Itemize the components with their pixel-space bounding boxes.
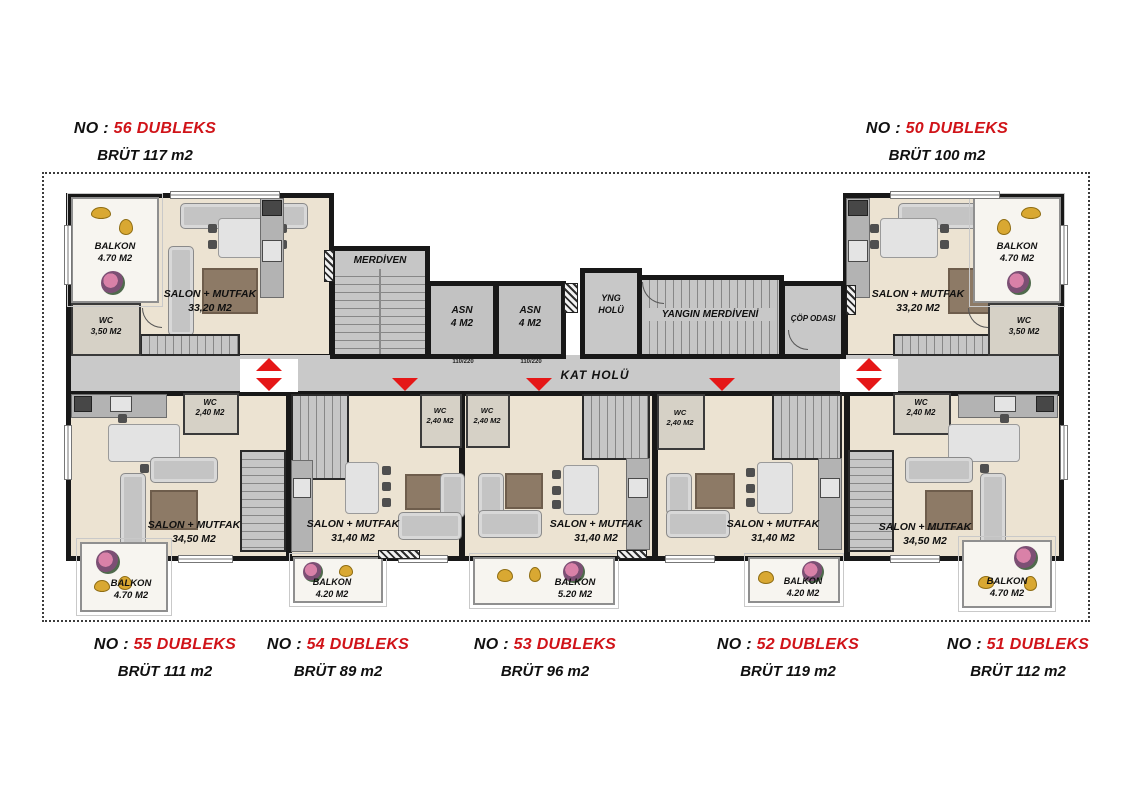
- wall-hatch: [846, 285, 856, 315]
- wc-50-name: WC: [1017, 315, 1031, 325]
- salon-54-name: SALON + MUTFAK: [307, 518, 399, 530]
- duplex-stair-50: [893, 334, 998, 356]
- balcony-53: BALKON5.20 M2: [473, 557, 615, 605]
- wc-52-area: 2,40 M2: [666, 418, 693, 427]
- wc-56-label: WC3,50 M2: [71, 315, 141, 337]
- unit-54-brut: BRÜT 89 m2: [228, 663, 448, 680]
- wc-54-label: WC2,40 M2: [420, 406, 460, 426]
- dining-table: [880, 218, 938, 258]
- chair: [940, 224, 949, 233]
- sink-icon: [628, 478, 648, 498]
- unit-53-brut: BRÜT 96 m2: [435, 663, 655, 680]
- red-arrow-down-icon: [526, 378, 552, 391]
- wc-55-area: 2,40 M2: [196, 408, 225, 417]
- sink-icon: [820, 478, 840, 498]
- balcony-50: BALKON4.70 M2: [973, 197, 1061, 303]
- wall-hatch: [617, 550, 647, 559]
- dining-table: [345, 462, 379, 514]
- rug: [405, 474, 445, 510]
- wc-50-area: 3,50 M2: [1009, 326, 1040, 336]
- unit-50-prefix: NO :: [866, 120, 906, 137]
- sofa: [905, 457, 973, 483]
- holu-text: HOLÜ: [598, 305, 624, 315]
- wall-hatch: [564, 283, 578, 313]
- fire-lobby: YNGHOLÜ: [580, 268, 642, 359]
- plant-icon: [96, 550, 120, 574]
- rug: [505, 473, 543, 509]
- salon-52-label: SALON + MUTFAK31,40 M2: [693, 518, 853, 545]
- unit-52-number: 52 DUBLEKS: [757, 636, 860, 653]
- balcony-50-label: BALKON4.70 M2: [975, 241, 1059, 266]
- elevator-2: ASN4 M2: [494, 281, 566, 359]
- unit-55-number: 55 DUBLEKS: [134, 636, 237, 653]
- salon-53-label: SALON + MUTFAK31,40 M2: [516, 518, 676, 545]
- wc-53-name: WC: [481, 406, 494, 415]
- dining-table: [563, 465, 599, 515]
- sofa: [666, 473, 692, 515]
- salon-50-area: 33,20 M2: [896, 302, 940, 314]
- sink-icon: [110, 396, 132, 412]
- duplex-stair-53: [582, 394, 650, 460]
- elevator-1: ASN4 M2: [426, 281, 498, 359]
- salon-53-name: SALON + MUTFAK: [550, 518, 642, 530]
- unit-50-brut: BRÜT 100 m2: [827, 147, 1047, 164]
- chair: [746, 468, 755, 477]
- unit-label-56: NO : 56 DUBLEKS BRÜT 117 m2: [35, 120, 255, 164]
- chair: [870, 240, 879, 249]
- unit-label-50: NO : 50 DUBLEKS BRÜT 100 m2: [827, 120, 1047, 164]
- sink-icon: [293, 478, 311, 498]
- unit-56-brut: BRÜT 117 m2: [35, 147, 255, 164]
- balcony-51-name: BALKON: [987, 576, 1028, 587]
- wc-51-name: WC: [914, 398, 927, 407]
- wc-56-area: 3,50 M2: [91, 326, 122, 336]
- floor-plan: NO : 56 DUBLEKS BRÜT 117 m2 NO : 50 DUBL…: [0, 0, 1132, 800]
- wc-53-area: 2,40 M2: [473, 416, 500, 425]
- balcony-56-area: 4.70 M2: [98, 253, 132, 264]
- unit-50-number: 50 DUBLEKS: [906, 120, 1009, 137]
- balcony-53-label: BALKON5.20 M2: [537, 577, 613, 602]
- balcony-56: BALKON4.70 M2: [71, 197, 159, 303]
- balcony-56-name: BALKON: [95, 241, 136, 252]
- unit-label-53: NO : 53 DUBLEKS BRÜT 96 m2: [435, 636, 655, 680]
- sofa: [478, 473, 504, 515]
- asn-area-text-2: 4 M2: [519, 318, 541, 329]
- window: [178, 555, 233, 563]
- plant-icon: [1014, 546, 1038, 570]
- salon-52-area: 31,40 M2: [751, 532, 795, 544]
- wall-hatch: [324, 250, 334, 282]
- chair: [552, 486, 561, 495]
- unit-54-prefix: NO :: [267, 636, 307, 653]
- stove-icon: [848, 200, 868, 216]
- balcony-51-label: BALKON4.70 M2: [968, 576, 1046, 601]
- corridor-label: KAT HOLÜ: [535, 368, 655, 384]
- unit-55-prefix: NO :: [94, 636, 134, 653]
- chair: [382, 466, 391, 475]
- elevator-1-dim: 110/220: [434, 359, 492, 365]
- sink-icon: [262, 240, 282, 262]
- asn-text: ASN: [451, 305, 472, 316]
- wc-51-area: 2,40 M2: [907, 408, 936, 417]
- window: [64, 425, 72, 480]
- balcony-50-area: 4.70 M2: [1000, 253, 1034, 264]
- plant-icon: [1007, 271, 1031, 295]
- dining-table: [757, 462, 793, 514]
- wc-52-label: WC2,40 M2: [657, 408, 703, 428]
- unit-51-number: 51 DUBLEKS: [987, 636, 1090, 653]
- salon-53-area: 31,40 M2: [574, 532, 618, 544]
- balcony-56-label: BALKON4.70 M2: [73, 241, 157, 266]
- chair: [552, 500, 561, 509]
- red-arrow-down-icon: [256, 378, 282, 391]
- balcony-52-label: BALKON4.20 M2: [768, 576, 838, 599]
- fire-stairs-label: YANGIN MERDİVENİ: [645, 308, 775, 321]
- unit-53-number: 53 DUBLEKS: [514, 636, 617, 653]
- lounge-icon: [997, 219, 1011, 235]
- unit-53-prefix: NO :: [474, 636, 514, 653]
- balcony-53-area: 5.20 M2: [558, 589, 592, 600]
- elevator-2-label: ASN4 M2: [499, 304, 561, 330]
- balcony-50-name: BALKON: [997, 241, 1038, 252]
- garbage-room: ÇÖP ODASI: [780, 281, 846, 359]
- salon-50-name: SALON + MUTFAK: [872, 288, 964, 300]
- unit-label-54: NO : 54 DUBLEKS BRÜT 89 m2: [228, 636, 448, 680]
- wc-55-name: WC: [203, 398, 216, 407]
- salon-54-label: SALON + MUTFAK31,40 M2: [273, 518, 433, 545]
- asn-area-text: 4 M2: [451, 318, 473, 329]
- chair: [1000, 414, 1009, 423]
- unit-52-prefix: NO :: [717, 636, 757, 653]
- balcony-55-label: BALKON4.70 M2: [96, 578, 166, 603]
- chair: [208, 240, 217, 249]
- merdiven-label: MERDİVEN: [335, 254, 425, 267]
- asn-text-2: ASN: [519, 305, 540, 316]
- window: [890, 555, 940, 563]
- garbage-room-label: ÇÖP ODASI: [785, 314, 841, 324]
- unit-56-prefix: NO :: [74, 120, 114, 137]
- lounge-icon: [1021, 207, 1041, 219]
- window: [1060, 425, 1068, 480]
- balcony-54-name: BALKON: [313, 577, 352, 587]
- unit-51-prefix: NO :: [947, 636, 987, 653]
- balcony-52-name: BALKON: [784, 576, 823, 586]
- balcony-54-area: 4.20 M2: [316, 589, 349, 599]
- salon-56-name: SALON + MUTFAK: [164, 288, 256, 300]
- chair: [552, 470, 561, 479]
- wc-50-label: WC3,50 M2: [988, 315, 1060, 337]
- wc-54-name: WC: [434, 406, 447, 415]
- lounge-icon: [339, 565, 353, 577]
- sofa: [150, 457, 218, 483]
- yng-text: YNG: [601, 293, 621, 303]
- red-arrow-up-icon: [256, 358, 282, 371]
- window: [665, 555, 715, 563]
- salon-51-area: 34,50 M2: [903, 535, 947, 547]
- chair: [382, 482, 391, 491]
- balcony-53-name: BALKON: [555, 577, 596, 588]
- balcony-51-area: 4.70 M2: [990, 588, 1024, 599]
- chair: [382, 498, 391, 507]
- window: [1060, 225, 1068, 285]
- wall-hatch: [378, 550, 420, 559]
- chair: [980, 464, 989, 473]
- balcony-51: BALKON4.70 M2: [962, 540, 1052, 608]
- red-arrow-down-icon: [709, 378, 735, 391]
- red-arrow-up-icon: [856, 358, 882, 371]
- lounge-icon: [497, 569, 513, 582]
- lounge-icon: [91, 207, 111, 219]
- stove-icon: [262, 200, 282, 216]
- balcony-54-label: BALKON4.20 M2: [297, 577, 367, 600]
- wc-56-name: WC: [99, 315, 113, 325]
- wc-52-name: WC: [674, 408, 687, 417]
- plant-icon: [101, 271, 125, 295]
- stair-centerline: [379, 269, 381, 354]
- duplex-stair-52: [772, 394, 842, 460]
- chair: [746, 498, 755, 507]
- fire-lobby-label: YNGHOLÜ: [585, 293, 637, 316]
- balcony-55-name: BALKON: [111, 578, 152, 589]
- salon-51-name: SALON + MUTFAK: [879, 521, 971, 533]
- chair: [208, 224, 217, 233]
- chair: [746, 484, 755, 493]
- salon-55-name: SALON + MUTFAK: [148, 519, 240, 531]
- duplex-stair-56: [140, 334, 240, 356]
- stair-merdiven: MERDİVEN: [330, 246, 430, 359]
- balcony-52: BALKON4.20 M2: [748, 557, 840, 603]
- stove-icon: [74, 396, 92, 412]
- window: [170, 191, 280, 199]
- stove-icon: [1036, 396, 1054, 412]
- red-arrow-down-icon: [392, 378, 418, 391]
- rug: [695, 473, 735, 509]
- salon-52-name: SALON + MUTFAK: [727, 518, 819, 530]
- unit-label-51: NO : 51 DUBLEKS BRÜT 112 m2: [908, 636, 1128, 680]
- unit-52-brut: BRÜT 119 m2: [678, 663, 898, 680]
- chair: [870, 224, 879, 233]
- sink-icon: [848, 240, 868, 262]
- wc-53-label: WC2,40 M2: [466, 406, 508, 426]
- chair: [940, 240, 949, 249]
- unit-51-brut: BRÜT 112 m2: [908, 663, 1128, 680]
- red-arrow-down-icon: [856, 378, 882, 391]
- window: [890, 191, 1000, 199]
- unit-56-number: 56 DUBLEKS: [114, 120, 217, 137]
- balcony-52-area: 4.20 M2: [787, 588, 820, 598]
- unit-54-number: 54 DUBLEKS: [307, 636, 410, 653]
- balcony-55: BALKON4.70 M2: [80, 542, 168, 612]
- chair: [140, 464, 149, 473]
- unit-label-52: NO : 52 DUBLEKS BRÜT 119 m2: [678, 636, 898, 680]
- chair: [118, 414, 127, 423]
- wc-51-label: WC2,40 M2: [893, 398, 949, 419]
- balcony-55-area: 4.70 M2: [114, 590, 148, 601]
- lounge-icon: [119, 219, 133, 235]
- balcony-54: BALKON4.20 M2: [293, 557, 383, 603]
- salon-54-area: 31,40 M2: [331, 532, 375, 544]
- sink-icon: [994, 396, 1016, 412]
- wc-54-area: 2,40 M2: [426, 416, 453, 425]
- salon-55-area: 34,50 M2: [172, 533, 216, 545]
- window: [64, 225, 72, 285]
- elevator-1-label: ASN4 M2: [431, 304, 493, 330]
- elevator-2-dim: 110/220: [502, 359, 560, 365]
- wc-55-label: WC2,40 M2: [183, 398, 237, 419]
- salon-56-area: 33,20 M2: [188, 302, 232, 314]
